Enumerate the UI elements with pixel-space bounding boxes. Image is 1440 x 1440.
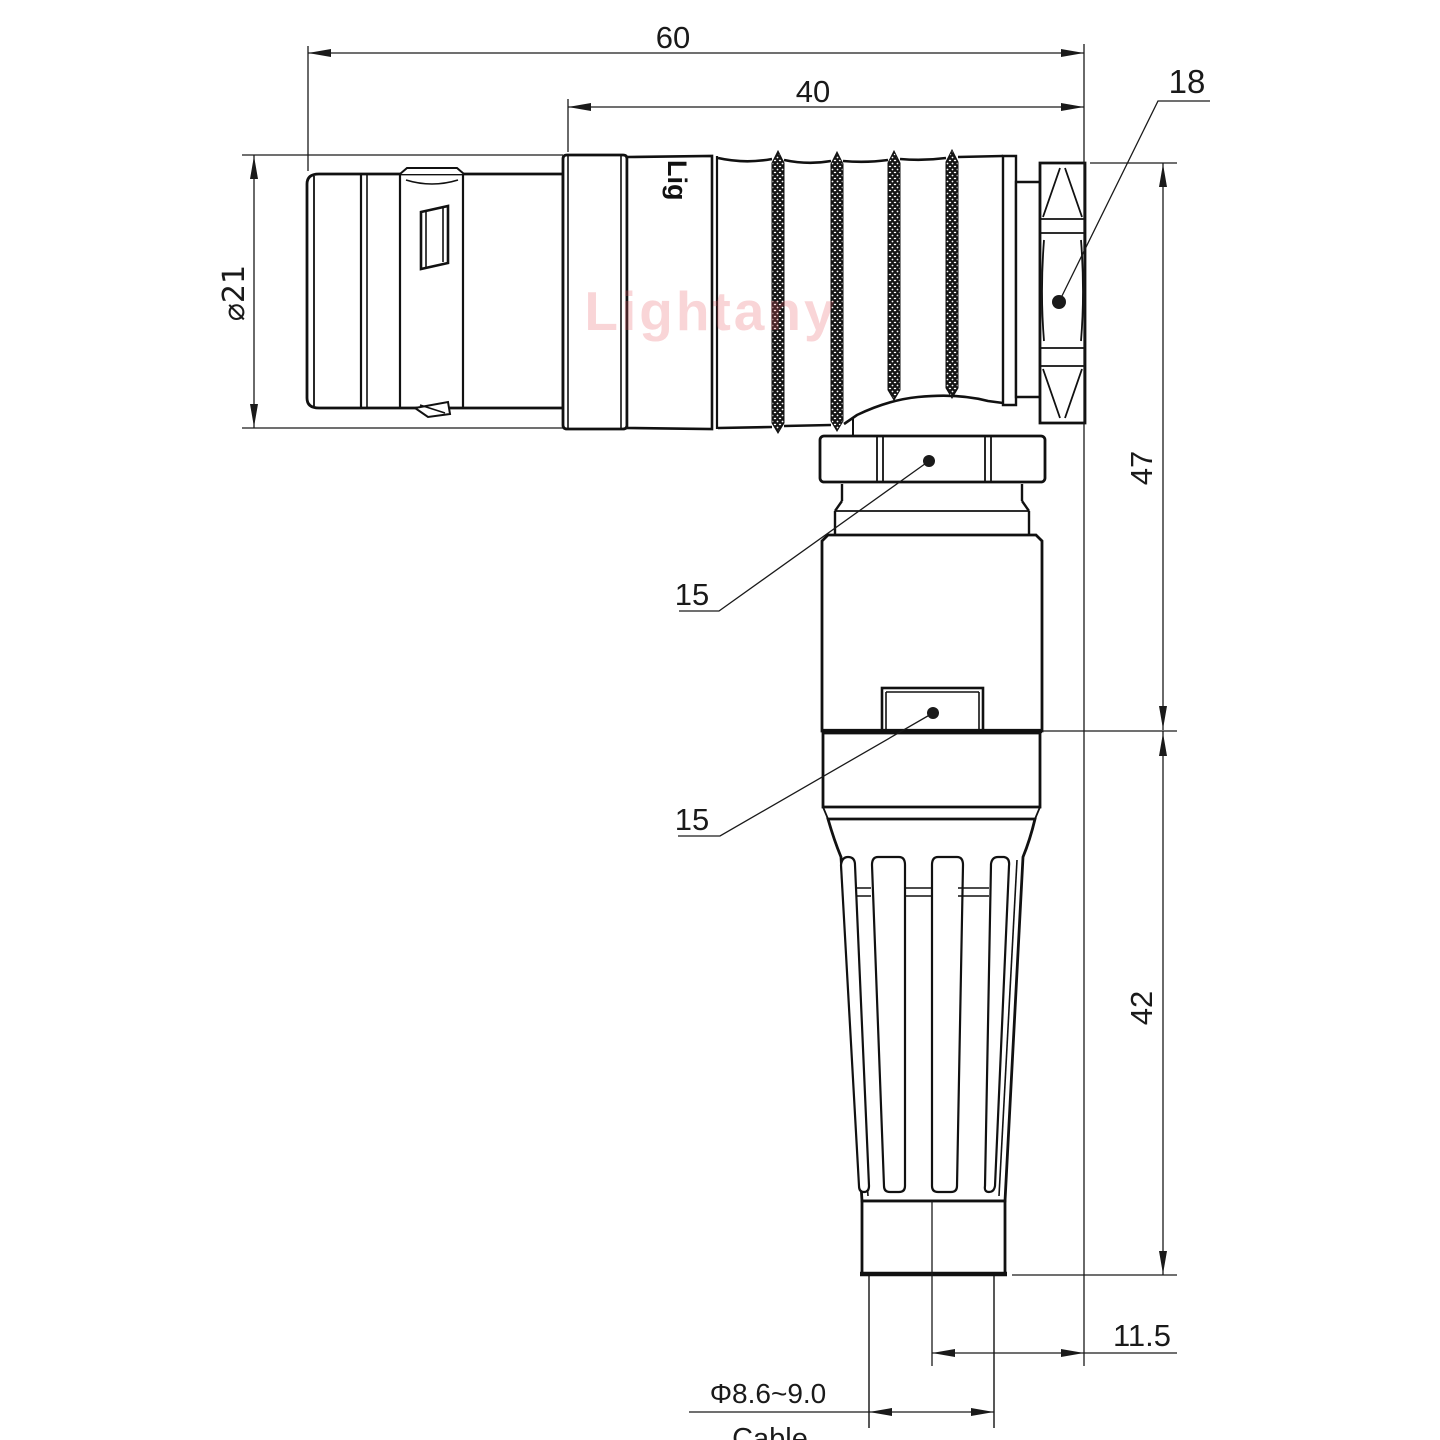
technical-drawing-canvas: Lightany Lig — [0, 0, 1440, 1440]
dim-11-5-label: 11.5 — [1113, 1318, 1171, 1353]
dim-47-label: 47 — [1124, 451, 1159, 485]
rear-ring — [1003, 156, 1016, 405]
knurl-section-top — [718, 156, 1003, 163]
dim-60-label: 60 — [656, 20, 690, 55]
elbow-curve — [844, 396, 1003, 424]
cable-label: Cable — [732, 1423, 808, 1440]
cable-diameter-label: Φ8.6~9.0 — [710, 1378, 827, 1409]
hex-collar — [1016, 182, 1040, 397]
connector-drawing: Lightany Lig — [0, 0, 1440, 1440]
hex-nut — [1040, 163, 1085, 423]
dim-40-label: 40 — [796, 74, 830, 109]
dim-15-upper-label: 15 — [675, 577, 709, 612]
dim-18-label: 18 — [1169, 63, 1206, 100]
dim-15-lower-label: 15 — [675, 802, 709, 837]
cable-ferrule — [862, 1201, 1005, 1274]
lower-body — [823, 733, 1040, 807]
brand-marking-text: Lig — [662, 160, 692, 201]
watermark-text: Lightany — [584, 280, 837, 342]
latch-window — [421, 206, 448, 269]
sleeve-top-tab — [400, 168, 464, 174]
dim-phi21-label: ⌀21 — [217, 265, 252, 321]
dim-42-label: 42 — [1124, 991, 1159, 1025]
